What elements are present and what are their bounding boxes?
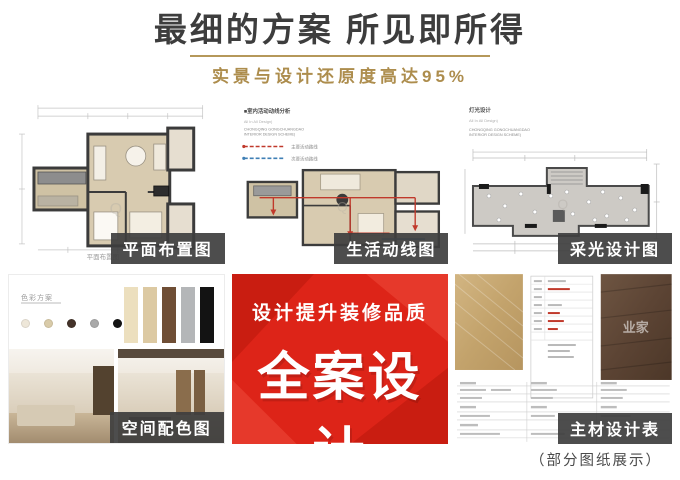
page-subtitle: 实景与设计还原度高达95% bbox=[0, 62, 680, 87]
color-dot bbox=[21, 319, 30, 328]
color-dot bbox=[113, 319, 122, 328]
color-swatch bbox=[143, 287, 157, 343]
color-swatch bbox=[181, 287, 195, 343]
color-dot bbox=[90, 319, 99, 328]
panel-life-flow: ■室内活动动线分析 All In All Design) CHONGQING G… bbox=[232, 94, 449, 264]
flow-header-title: ■室内活动动线分析 bbox=[243, 107, 290, 115]
walnut-sample-photo: 业家 bbox=[601, 274, 672, 380]
lighting-header-line1: CHONGQING GONGCHUANGDAO bbox=[469, 128, 530, 132]
watermark-logo: Q bbox=[558, 196, 569, 212]
badge-palette: 空间配色图 bbox=[110, 412, 224, 443]
lighting-header-title: 灯光设计 bbox=[469, 106, 491, 114]
flow-legend: 主要活动路线 次要活动路线 bbox=[242, 143, 318, 162]
palette-sublabel-bar bbox=[21, 302, 61, 304]
page-title: 最细的方案 所见即所得 bbox=[0, 12, 680, 48]
color-dot bbox=[44, 319, 53, 328]
spec-form bbox=[531, 276, 593, 398]
drawings-grid: Q 平面布置图 平面布置图 ■室内活动动线分析 All In All Desig… bbox=[8, 94, 672, 444]
panel-lighting: 灯光设计 All In All Design) CHONGQING GONGCH… bbox=[455, 94, 672, 264]
panel-floor-plan: Q 平面布置图 平面布置图 bbox=[8, 94, 225, 264]
panel-materials: 业家 bbox=[455, 274, 672, 444]
promo-tagline: 设计提升装修品质 bbox=[232, 298, 449, 325]
lighting-header-sub: All In All Design) bbox=[469, 118, 499, 123]
badge-floor-plan: 平面布置图 bbox=[111, 233, 225, 264]
legend-primary-label: 主要活动路线 bbox=[291, 143, 318, 150]
living-room-photo bbox=[9, 349, 114, 443]
promo-headline: 全案设计 bbox=[232, 335, 449, 444]
color-swatch bbox=[124, 287, 138, 343]
badge-materials: 主材设计表 bbox=[558, 413, 672, 444]
panel-promo: 设计提升装修品质 全案设计 含基装设计、主材设计、软装等设计服务 bbox=[232, 274, 449, 444]
watermark-logo: Q bbox=[337, 200, 348, 215]
gold-divider bbox=[190, 55, 490, 57]
watermark-logo: Q bbox=[110, 201, 122, 218]
color-dot bbox=[67, 319, 76, 328]
oak-sample-photo bbox=[455, 274, 523, 370]
badge-lighting: 采光设计图 bbox=[558, 233, 672, 264]
poster-header: 最细的方案 所见即所得 实景与设计还原度高达95% bbox=[0, 0, 680, 87]
lighting-header-line2: INTERIOR DESIGN SCHEME) bbox=[469, 133, 522, 137]
badge-life-flow: 生活动线图 bbox=[334, 233, 448, 264]
promo-content: 设计提升装修品质 全案设计 含基装设计、主材设计、软装等设计服务 bbox=[232, 274, 449, 444]
panel-palette: 色彩方案 bbox=[8, 274, 225, 444]
color-swatch bbox=[200, 287, 214, 343]
color-swatch bbox=[162, 287, 176, 343]
palette-dots bbox=[21, 319, 122, 328]
poster-page: 最细的方案 所见即所得 实景与设计还原度高达95% bbox=[0, 0, 680, 480]
legend-secondary-label: 次要活动路线 bbox=[291, 155, 318, 162]
brand-watermark: 业家 bbox=[623, 320, 650, 335]
footer-note: （部分图纸展示） bbox=[530, 449, 662, 470]
flow-header-sub: All In All Design) bbox=[243, 119, 272, 124]
palette-swatches bbox=[124, 287, 214, 343]
flow-header-line2: INTERIOR DESIGN SCHEME) bbox=[243, 133, 295, 137]
flow-header-line1: CHONGQING GONGCHUANGDAO bbox=[243, 128, 303, 132]
